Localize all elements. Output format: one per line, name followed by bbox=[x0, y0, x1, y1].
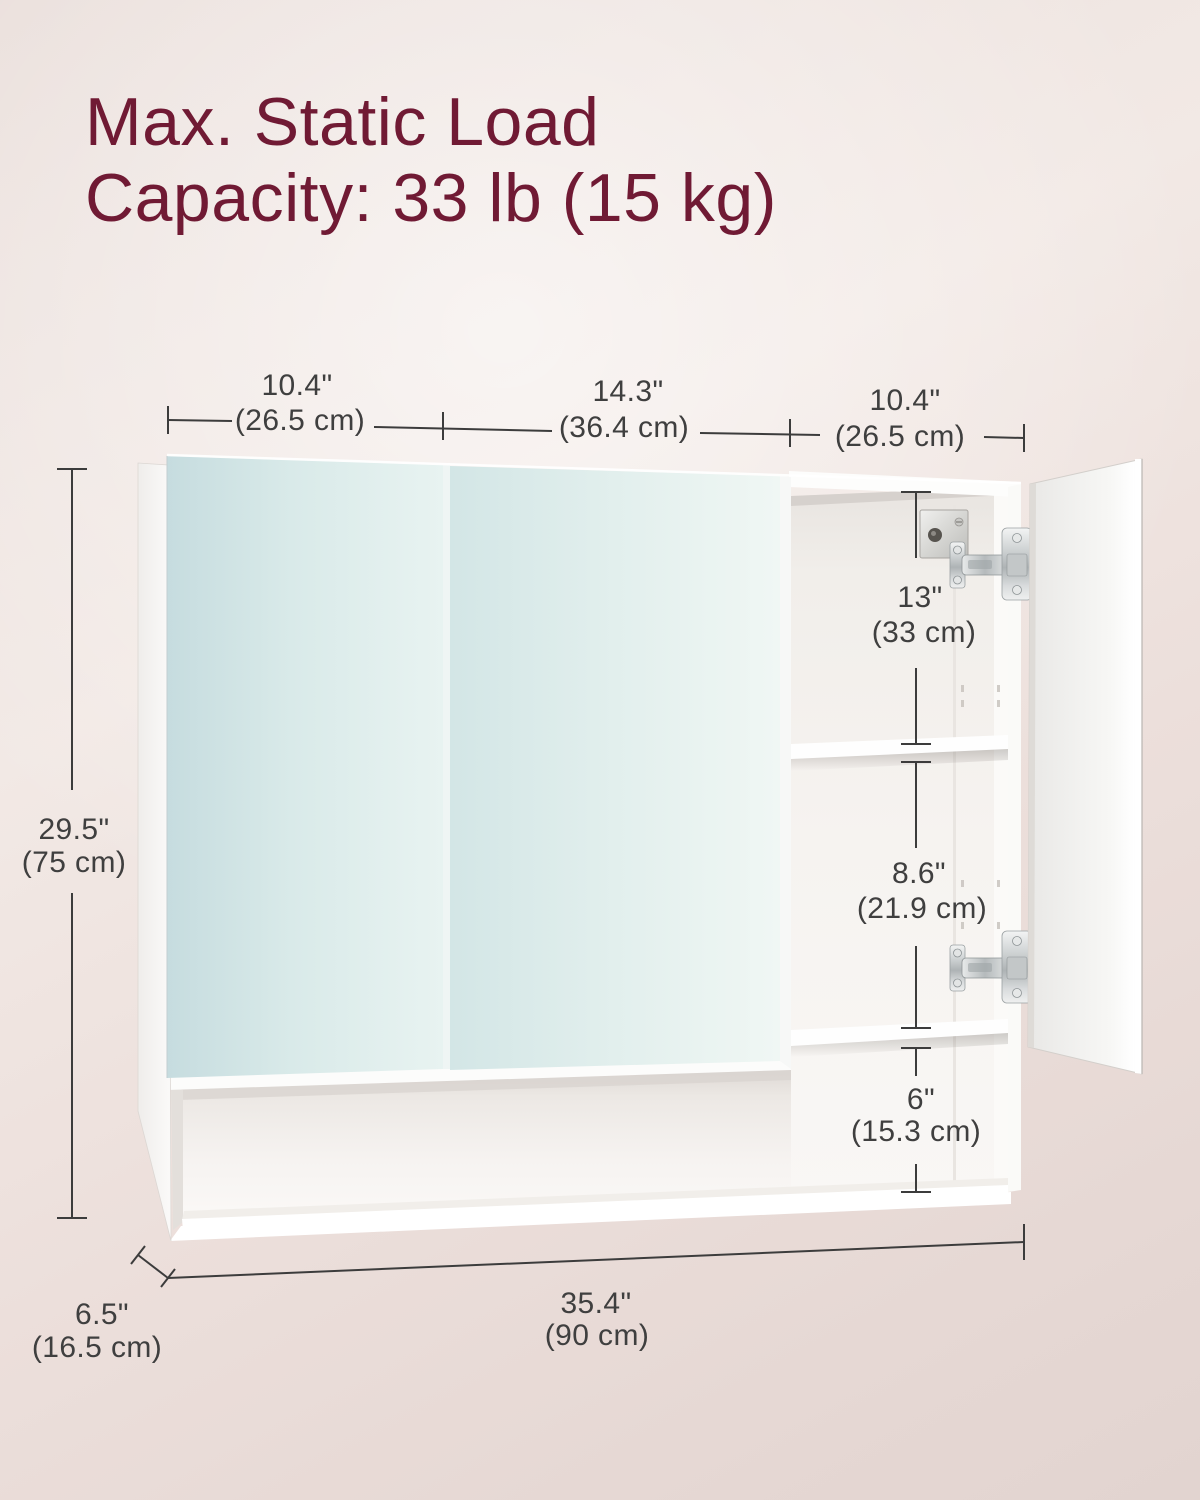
dim-top-left-inch: 10.4" bbox=[261, 369, 332, 403]
dim-width-cm: (90 cm) bbox=[545, 1319, 649, 1353]
dim-interior-6-cm: (15.3 cm) bbox=[851, 1115, 981, 1149]
bottom-left-inner-wall bbox=[171, 1087, 183, 1230]
dim-depth-inch: 6.5" bbox=[75, 1298, 129, 1332]
title-line-2: Capacity: 33 lb (15 kg) bbox=[85, 160, 777, 236]
dim-interior-86-cm: (21.9 cm) bbox=[857, 892, 987, 926]
dim-top-right-cm: (26.5 cm) bbox=[835, 420, 965, 454]
center-partition-edge bbox=[780, 476, 791, 1069]
dim-height-cm: (75 cm) bbox=[22, 846, 126, 880]
dim-height-inch: 29.5" bbox=[38, 813, 109, 847]
dim-interior-86-inch: 8.6" bbox=[892, 857, 946, 891]
compartment-back-corner-line bbox=[953, 505, 956, 1190]
dim-depth-cm: (16.5 cm) bbox=[32, 1331, 162, 1365]
dim-top-mid-inch: 14.3" bbox=[592, 375, 663, 409]
open-door-edge-highlight bbox=[1135, 459, 1142, 1074]
dim-width-inch: 35.4" bbox=[560, 1287, 631, 1321]
mirror-door-center bbox=[450, 466, 780, 1070]
dim-interior-13-cm: (33 cm) bbox=[872, 616, 976, 650]
open-door-panel bbox=[1028, 459, 1142, 1074]
dim-top-left-cm: (26.5 cm) bbox=[235, 404, 365, 438]
open-door bbox=[1028, 459, 1142, 1074]
mirror-door-left bbox=[167, 456, 443, 1078]
mirror-door-divider bbox=[443, 465, 450, 1069]
left-side-panel bbox=[138, 463, 171, 1241]
page-title: Max. Static Load Capacity: 33 lb (15 kg) bbox=[85, 84, 777, 236]
dim-top-right-inch: 10.4" bbox=[869, 384, 940, 418]
dim-interior-6-inch: 6" bbox=[907, 1083, 935, 1117]
product-dimension-diagram: Max. Static Load Capacity: 33 lb (15 kg)… bbox=[0, 0, 1200, 1500]
dim-top-mid-cm: (36.4 cm) bbox=[559, 411, 689, 445]
dim-interior-13-inch: 13" bbox=[897, 581, 942, 615]
title-line-1: Max. Static Load bbox=[85, 84, 777, 160]
dim-line-depth bbox=[131, 1246, 175, 1287]
